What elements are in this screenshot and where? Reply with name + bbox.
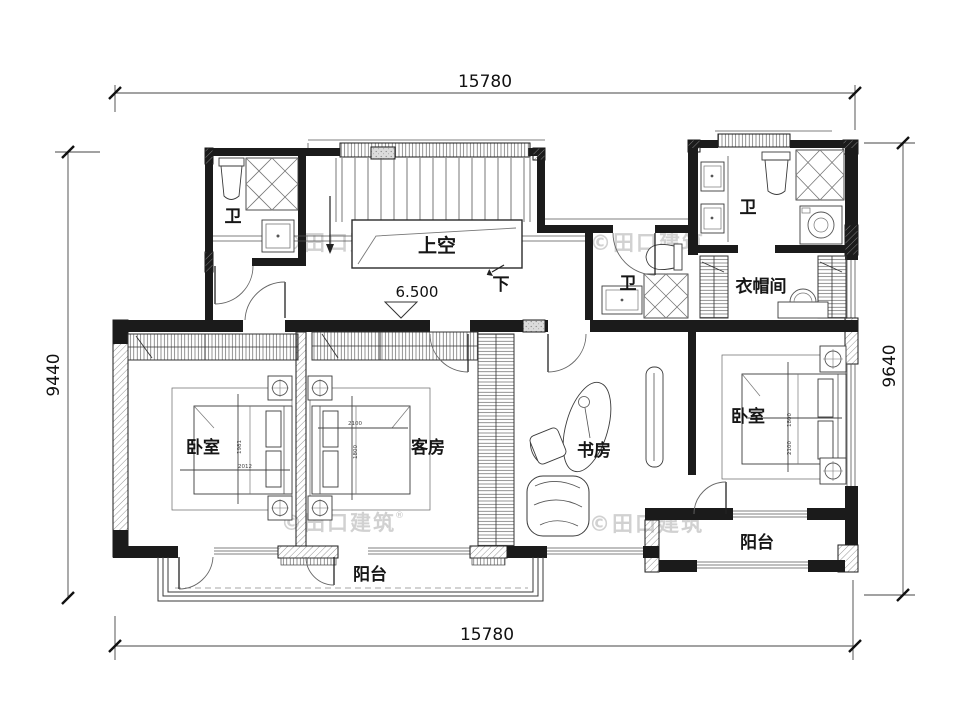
toilet-symbol — [765, 160, 788, 195]
door-track — [472, 558, 505, 565]
balcony-label: 阳台 — [740, 532, 774, 553]
bed-dim: 2012 — [238, 464, 252, 470]
toilet-symbol — [221, 166, 242, 200]
sink-symbol — [262, 220, 294, 252]
closet-window — [847, 260, 855, 318]
closet-label: 衣帽间 — [736, 276, 787, 297]
room-bathroom-topright: 卫 — [701, 150, 844, 244]
void-label: 上空 — [418, 234, 456, 257]
toilet-symbol — [646, 244, 674, 269]
floor-plan-canvas: ©田口建筑 ©田口建筑 ©田口建筑 ©田口建筑 ® ® — [0, 0, 961, 722]
bed-dim: 2100 — [787, 441, 793, 455]
nightstand-symbol — [308, 496, 332, 520]
bathroom-label: 卫 — [620, 274, 637, 294]
vanity-sink-symbol — [701, 162, 724, 191]
balcony-label: 阳台 — [353, 564, 387, 585]
nightstand-symbol — [820, 458, 846, 484]
vanity-sink-symbol — [701, 204, 724, 233]
dim-bottom-value: 15780 — [460, 625, 514, 645]
toilet-symbol — [674, 244, 682, 270]
stair-window — [340, 143, 530, 157]
bed-dim: 1981 — [237, 440, 243, 454]
balcony-right: 阳台 — [740, 532, 774, 553]
dim-top-value: 15780 — [458, 72, 512, 92]
desk-symbol — [554, 377, 620, 477]
bottom-window-2 — [368, 548, 470, 554]
room-bedroom-right: 1800 2100 卧室 — [694, 346, 846, 514]
level-marker: 6.500 — [385, 283, 438, 318]
bottom-window-3 — [547, 548, 643, 554]
shower-symbol — [796, 150, 844, 200]
sofa-symbol — [527, 476, 589, 536]
bed-dim: 1800 — [787, 413, 793, 427]
nightstand-symbol — [308, 376, 332, 400]
toilet-symbol — [762, 152, 790, 160]
bed-symbol: 2100 1800 — [312, 396, 410, 500]
bottom-window-1 — [214, 548, 278, 554]
toilet-symbol — [219, 158, 244, 166]
bedroom-balcony-window — [733, 511, 807, 517]
bath-tr-window — [718, 134, 790, 147]
shower-symbol — [246, 158, 298, 210]
dimension-right: 9640 — [864, 137, 915, 601]
bed-dim: 2100 — [348, 421, 362, 427]
shower-symbol — [644, 274, 688, 318]
dimension-top: 15780 — [109, 72, 861, 130]
bedroom-label: 卧室 — [186, 437, 220, 458]
door-track — [281, 558, 336, 565]
bed-dim: 1800 — [353, 445, 359, 459]
level-value: 6.500 — [396, 283, 439, 301]
dimension-left: 9440 — [44, 146, 100, 604]
dim-right-value: 9640 — [880, 344, 900, 387]
chair-symbol — [527, 426, 568, 466]
guest-room-label: 客房 — [410, 437, 445, 458]
room-study: 书房 — [527, 334, 663, 536]
cabinet-symbol — [646, 367, 663, 467]
level-triangle-icon — [385, 302, 417, 318]
down-label: 下 — [493, 275, 510, 295]
washing-machine-symbol — [800, 206, 842, 244]
dim-left-value: 9440 — [44, 353, 64, 396]
room-closet: 衣帽间 — [700, 256, 846, 318]
balcony-right-window — [697, 562, 808, 568]
bathroom-label: 卫 — [740, 198, 757, 218]
nightstand-symbol — [268, 376, 292, 400]
room-guest: 2100 1800 客房 — [308, 332, 478, 520]
study-label: 书房 — [577, 440, 611, 461]
watermark-reg-icon: ® — [395, 511, 404, 521]
nightstand-symbol — [820, 346, 846, 372]
bedroom-label: 卧室 — [731, 406, 765, 427]
bedroom-right-window — [847, 364, 855, 486]
nightstand-symbol — [268, 496, 292, 520]
bathroom-label: 卫 — [225, 207, 242, 227]
